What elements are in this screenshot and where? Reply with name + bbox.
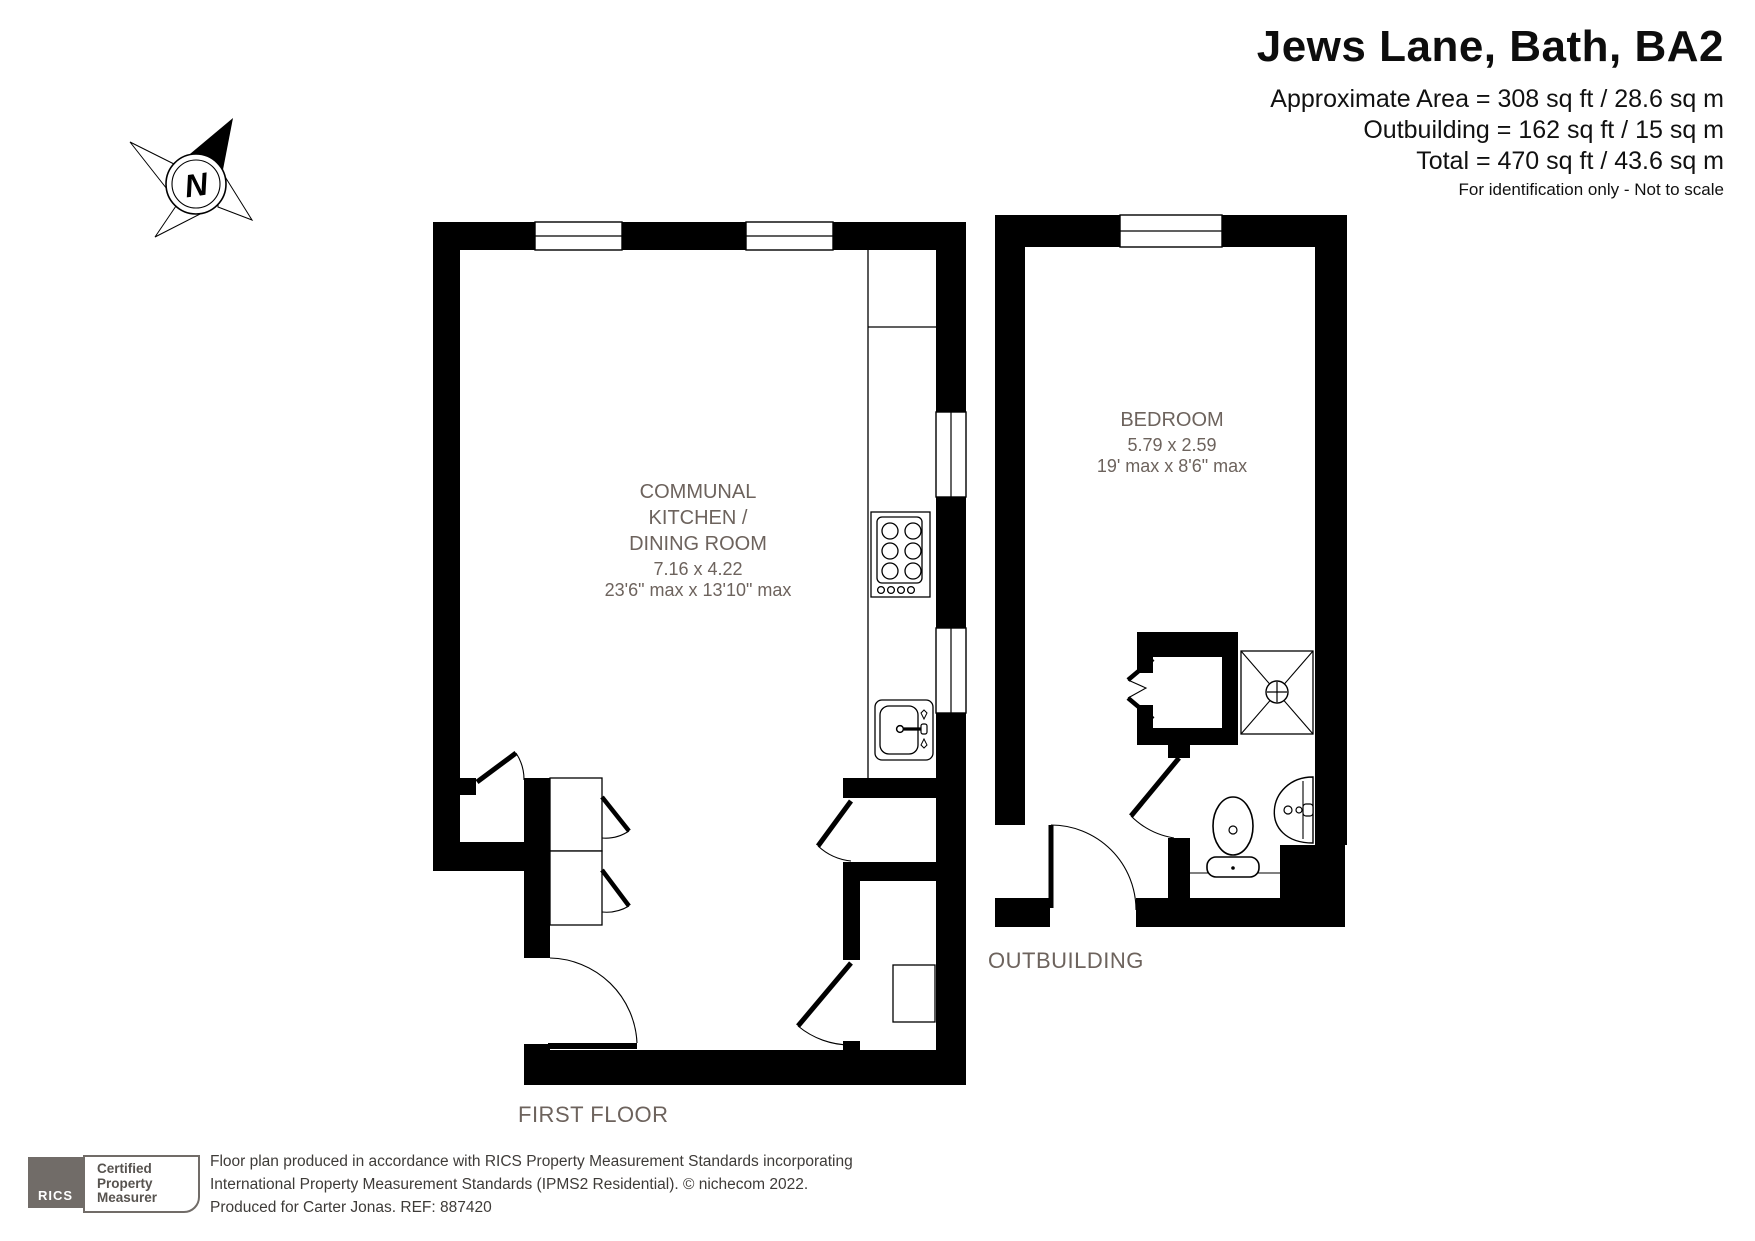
footer-line: International Property Measurement Stand… [210, 1173, 1010, 1196]
door-swing [798, 963, 851, 1045]
certified-property-measurer-badge: Certified Property Measurer [83, 1155, 200, 1213]
rics-badge: RICS [28, 1157, 83, 1208]
door-swing [548, 958, 637, 1046]
toilet-icon [1188, 797, 1280, 877]
room-name-line: DINING ROOM [548, 531, 848, 557]
cupboard [550, 778, 602, 925]
outbuilding-plan [995, 215, 1347, 927]
first-floor-room-label: COMMUNAL KITCHEN / DINING ROOM 7.16 x 4.… [548, 479, 848, 601]
window [1120, 215, 1222, 247]
first-floor-walls [433, 222, 966, 1085]
door-swing [477, 753, 524, 782]
area-summary: Approximate Area = 308 sq ft / 28.6 sq m… [1270, 84, 1724, 177]
cupboard-door-swing [602, 797, 629, 912]
first-floor-plan [433, 222, 966, 1085]
compass-icon: N [130, 118, 252, 237]
floorplan-page: N Jews Lane, Bath, BA2 Approximate Area … [0, 0, 1755, 1241]
footer-line: Floor plan produced in accordance with R… [210, 1150, 1010, 1173]
area-line-outbuilding: Outbuilding = 162 sq ft / 15 sq m [1270, 115, 1724, 146]
footer-line: Produced for Carter Jonas. REF: 887420 [210, 1196, 1010, 1219]
badge-line: Certified [97, 1162, 198, 1177]
room-dims-metric: 7.16 x 4.22 [548, 559, 848, 580]
room-name-line: KITCHEN / [548, 505, 848, 531]
scale-disclaimer: For identification only - Not to scale [1458, 180, 1724, 200]
door-swing [818, 801, 851, 861]
window [535, 222, 622, 250]
window [936, 628, 966, 713]
outbuilding-title: OUTBUILDING [988, 948, 1144, 974]
room-dims-imperial: 23'6" max x 13'10" max [548, 580, 848, 601]
area-line-total-main: Approximate Area = 308 sq ft / 28.6 sq m [1270, 84, 1724, 115]
hob-icon [871, 512, 930, 597]
room-name-line: COMMUNAL [548, 479, 848, 505]
window [746, 222, 833, 250]
fixture-box [893, 965, 935, 1022]
door-swing [1051, 825, 1136, 910]
room-dims-imperial: 19' max x 8'6" max [1022, 456, 1322, 477]
rics-org-name: RICS [28, 1188, 83, 1203]
page-title: Jews Lane, Bath, BA2 [1257, 22, 1724, 72]
area-line-total: Total = 470 sq ft / 43.6 sq m [1270, 146, 1724, 177]
badge-line: Property [97, 1177, 198, 1192]
first-floor-title: FIRST FLOOR [518, 1102, 669, 1128]
badge-line: Measurer [97, 1191, 198, 1206]
sink-icon [875, 700, 933, 760]
door-swing [1131, 758, 1179, 838]
footer-disclaimer: Floor plan produced in accordance with R… [210, 1150, 1010, 1219]
window [936, 412, 966, 497]
basin-icon [1274, 777, 1313, 843]
shower-icon [1241, 651, 1313, 734]
room-dims-metric: 5.79 x 2.59 [1022, 435, 1322, 456]
outbuilding-room-label: BEDROOM 5.79 x 2.59 19' max x 8'6" max [1022, 407, 1322, 477]
room-name: BEDROOM [1022, 407, 1322, 433]
